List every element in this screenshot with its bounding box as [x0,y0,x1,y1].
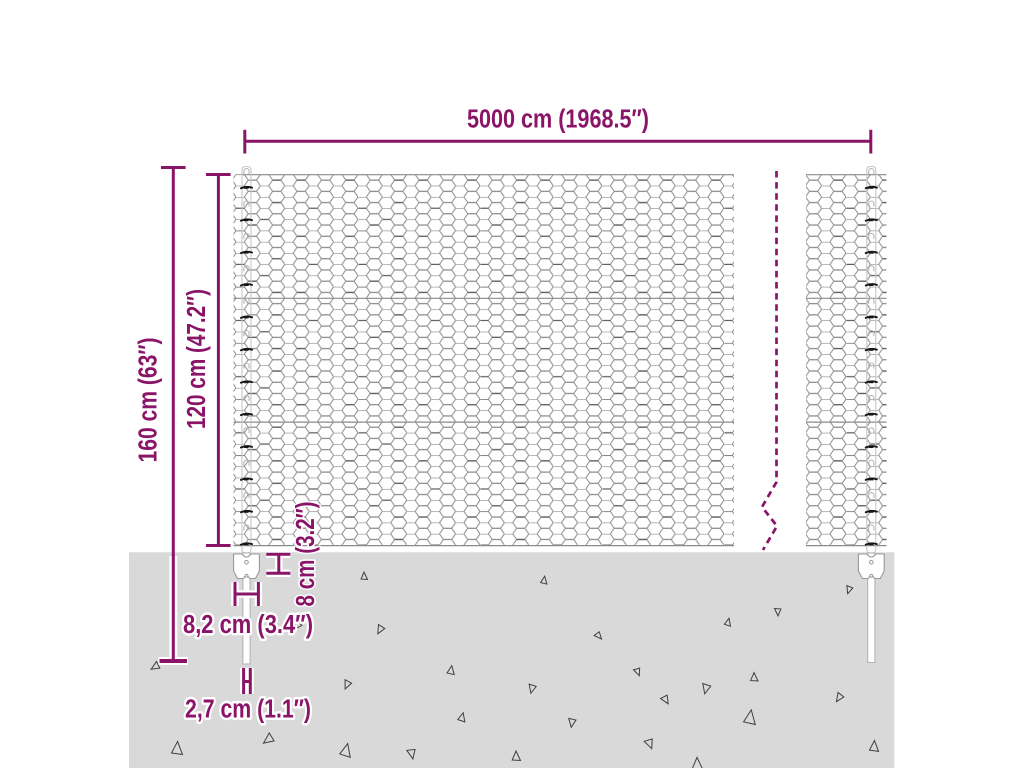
svg-text:120 cm (47.2″): 120 cm (47.2″) [183,289,211,429]
svg-text:8,2 cm (3.4″): 8,2 cm (3.4″) [183,611,313,639]
svg-text:8 cm (3.2″): 8 cm (3.2″) [292,502,320,607]
svg-text:160 cm (63″): 160 cm (63″) [135,338,163,463]
svg-text:2,7 cm (1.1″): 2,7 cm (1.1″) [185,696,311,724]
svg-text:5000 cm (1968.5″): 5000 cm (1968.5″) [467,105,649,133]
